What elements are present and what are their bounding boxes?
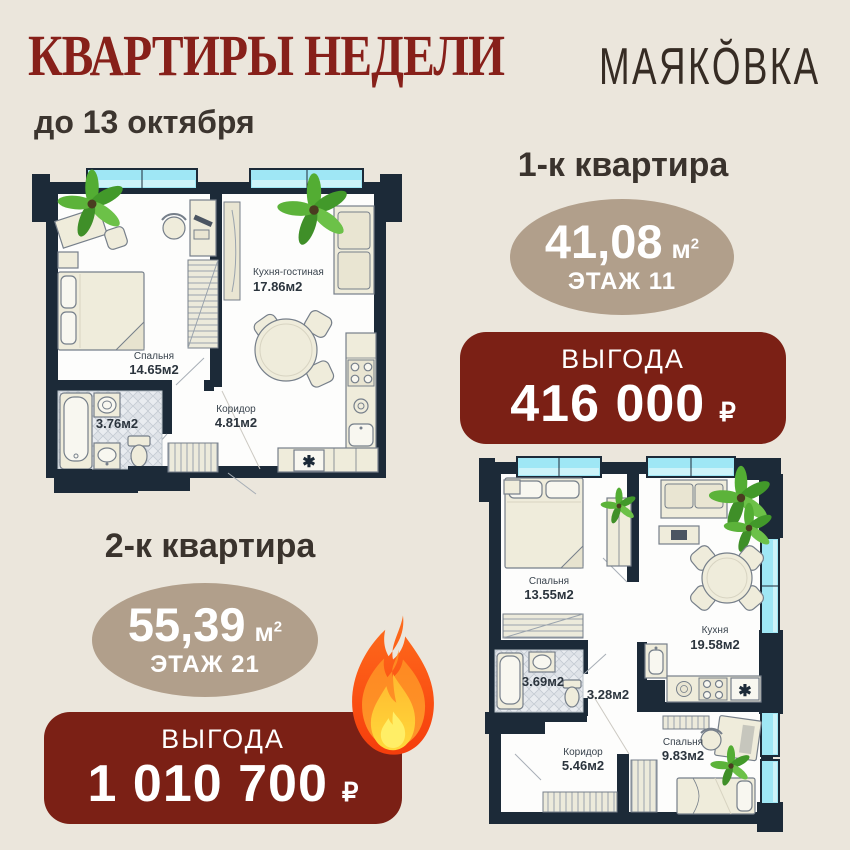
bathtub-icon bbox=[60, 393, 92, 469]
sink-icon bbox=[529, 652, 555, 672]
room-label: Коридор bbox=[216, 404, 256, 415]
poster-title: КВАРТИРЫ НЕДЕЛИ bbox=[28, 22, 504, 89]
washing-machine-icon bbox=[94, 393, 120, 417]
wardrobe-icon bbox=[631, 760, 657, 812]
plan2-window-right-2 bbox=[761, 712, 779, 756]
bed-icon bbox=[58, 272, 144, 350]
room-label: Коридор bbox=[563, 747, 603, 758]
floorplan-2: Спальня 13.55м2 Кухня 19.58м2 3.69м2 3.2… bbox=[479, 454, 783, 832]
offer2-ruble-sign: ₽ bbox=[342, 779, 359, 806]
offer2-benefit-row: 1 010 700 ₽ bbox=[44, 757, 402, 812]
plan2-window-right-1 bbox=[761, 538, 779, 634]
room-label: Спальня bbox=[134, 351, 174, 362]
room-area: 19.58м2 bbox=[690, 637, 739, 652]
sofa-icon bbox=[334, 206, 374, 294]
offer1-benefit-label: ВЫГОДА bbox=[460, 344, 786, 375]
room-area: 14.65м2 bbox=[129, 362, 178, 377]
offer1-area-unit: м2 bbox=[672, 236, 700, 262]
toilet-icon bbox=[563, 680, 581, 707]
room-label: Кухня-гостиная bbox=[253, 267, 324, 278]
plan2-window-top-right bbox=[647, 457, 735, 477]
office-chair-icon bbox=[701, 729, 722, 750]
hall-panel-icon bbox=[224, 202, 240, 300]
plan2-window-top-left bbox=[517, 457, 601, 477]
washer-symbol: ✱ bbox=[302, 454, 315, 471]
room-area: 3.76м2 bbox=[96, 416, 138, 431]
offer2-benefit-value: 1 010 700 bbox=[88, 757, 328, 812]
offer1-benefit-row: 416 000 ₽ bbox=[460, 377, 786, 432]
floorplan-1: Кухня-гостиная 17.86м2 Спальня 14.65м2 3… bbox=[28, 166, 410, 498]
offer2-area-unit: м2 bbox=[255, 619, 283, 645]
offer1-ruble-sign: ₽ bbox=[719, 399, 736, 426]
offer2-area-value: 55,39 bbox=[128, 601, 246, 648]
offer1-area-line: 41,08 м2 bbox=[545, 218, 699, 265]
room-area: 4.81м2 bbox=[215, 415, 257, 430]
kitchen-sink-unit-icon bbox=[645, 644, 667, 678]
dining-table-icon bbox=[255, 319, 317, 381]
room-area: 9.83м2 bbox=[662, 748, 704, 763]
offer1-heading: 1-к квартира bbox=[440, 146, 806, 185]
bench-icon bbox=[58, 252, 78, 268]
plan2-window-right-3 bbox=[761, 760, 779, 804]
promo-poster: КВАРТИРЫ НЕДЕЛИ МАЯКŎВКА до 13 октября 1… bbox=[0, 0, 850, 850]
bed-icon bbox=[677, 778, 755, 814]
bathtub-icon bbox=[497, 653, 523, 709]
room-area: 3.28м2 bbox=[587, 687, 629, 702]
shoe-cabinet-icon bbox=[168, 443, 218, 472]
kitchen-counter-icon bbox=[346, 333, 376, 450]
plan1-window-left bbox=[87, 169, 197, 189]
offer1-benefit-badge: ВЫГОДА 416 000 ₽ bbox=[460, 332, 786, 444]
room-area: 13.55м2 bbox=[524, 587, 573, 602]
tv-table-icon bbox=[659, 526, 699, 544]
room-label: Кухня bbox=[702, 625, 729, 636]
shelf-icon bbox=[663, 716, 709, 729]
offer2-area-badge: 55,39 м2 ЭТАЖ 21 bbox=[92, 583, 318, 697]
room-area: 17.86м2 bbox=[253, 279, 302, 294]
work-desk-icon bbox=[190, 200, 216, 256]
plan1-window-right bbox=[250, 169, 363, 189]
dining-table-icon bbox=[702, 553, 752, 603]
brand-logo: МАЯКŎВКА bbox=[599, 36, 821, 96]
sink-icon bbox=[94, 443, 120, 469]
washer-symbol: ✱ bbox=[738, 683, 751, 700]
offer1-area-value: 41,08 bbox=[545, 218, 663, 265]
room-label: Спальня bbox=[529, 576, 569, 587]
deadline-text: до 13 октября bbox=[34, 104, 255, 141]
offer2-floor: ЭТАЖ 21 bbox=[150, 651, 260, 679]
wardrobe-icon bbox=[543, 792, 617, 812]
offer1-floor: ЭТАЖ 11 bbox=[568, 268, 676, 296]
nightstand-icon bbox=[504, 480, 520, 494]
offer2-heading: 2-к квартира bbox=[25, 527, 395, 566]
room-area: 5.46м2 bbox=[562, 758, 604, 773]
desk-icon bbox=[714, 715, 761, 760]
kitchen-counter-bottom-icon bbox=[278, 448, 378, 472]
room-area: 3.69м2 bbox=[522, 674, 564, 689]
offer1-area-badge: 41,08 м2 ЭТАЖ 11 bbox=[510, 199, 734, 315]
fire-icon bbox=[336, 612, 450, 758]
offer2-area-line: 55,39 м2 bbox=[128, 601, 282, 648]
room-label: Спальня bbox=[663, 737, 703, 748]
offer1-benefit-value: 416 000 bbox=[510, 377, 705, 432]
